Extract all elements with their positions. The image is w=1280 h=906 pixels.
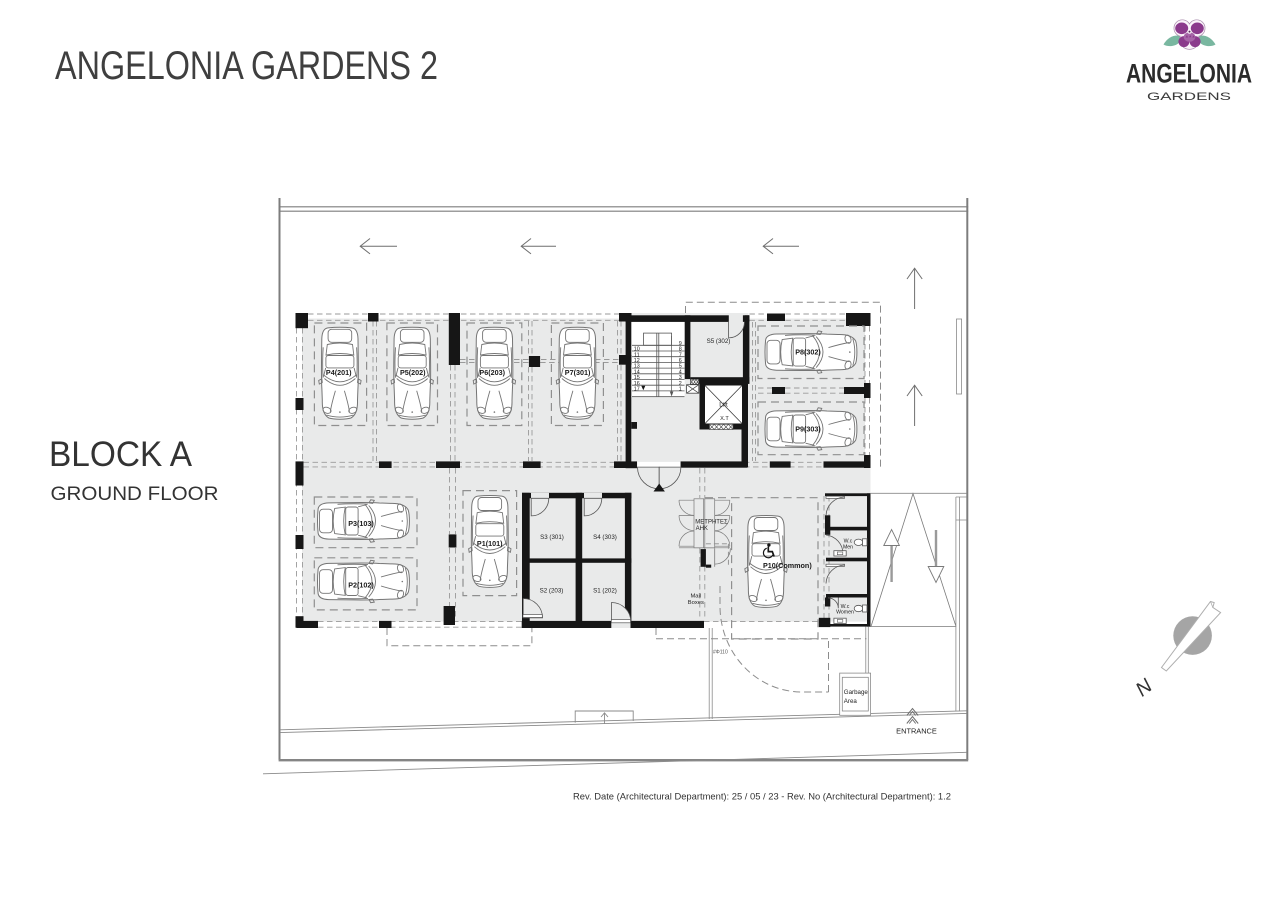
svg-text:P7(301): P7(301) [565,368,591,377]
svg-text:Women: Women [836,610,854,616]
svg-text:Mail: Mail [690,594,701,600]
svg-text:P1(101): P1(101) [477,539,503,548]
svg-text:S5 (302): S5 (302) [707,338,731,345]
svg-text:P9(303): P9(303) [795,425,821,434]
svg-text:ΑΗΚ: ΑΗΚ [696,526,708,532]
svg-text:Rev. Date (Architectural Depar: Rev. Date (Architectural Department): 25… [573,790,951,801]
svg-text:1: 1 [679,387,682,393]
svg-text:Area: Area [844,698,858,705]
svg-text:P10(Common): P10(Common) [763,561,812,570]
svg-text:S2 (203): S2 (203) [540,587,564,594]
svg-text:GROUND FLOOR: GROUND FLOOR [51,484,219,505]
svg-text:ΜΕΤΡΗΤΕΣ: ΜΕΤΡΗΤΕΣ [695,520,728,526]
svg-text:P6(203): P6(203) [479,368,505,377]
svg-text:ANGELONIA: ANGELONIA [1126,59,1252,89]
svg-text:Boxes: Boxes [688,600,704,606]
svg-text:S3 (301): S3 (301) [540,534,564,541]
svg-text:GARDENS: GARDENS [1147,91,1231,103]
svg-text:ANGELONIA GARDENS 2: ANGELONIA GARDENS 2 [55,44,438,88]
svg-text:ENTRANCE: ENTRANCE [896,727,937,736]
svg-text:S4 (303): S4 (303) [593,534,617,541]
svg-text:Men: Men [843,544,853,550]
svg-text:P8(302): P8(302) [795,348,821,357]
svg-text:#Φ110: #Φ110 [713,650,728,656]
svg-text:BLOCK A: BLOCK A [49,435,193,474]
svg-text:P2(102): P2(102) [348,581,374,590]
svg-text:Garbage: Garbage [844,689,869,696]
svg-text:P5(202): P5(202) [400,368,426,377]
svg-text:S1 (202): S1 (202) [593,587,617,594]
svg-text:X.T: X.T [720,416,729,422]
svg-text:17: 17 [634,387,640,393]
svg-text:P3(103): P3(103) [348,519,374,528]
svg-text:Lift: Lift [719,402,728,409]
svg-text:P4(201): P4(201) [326,368,352,377]
